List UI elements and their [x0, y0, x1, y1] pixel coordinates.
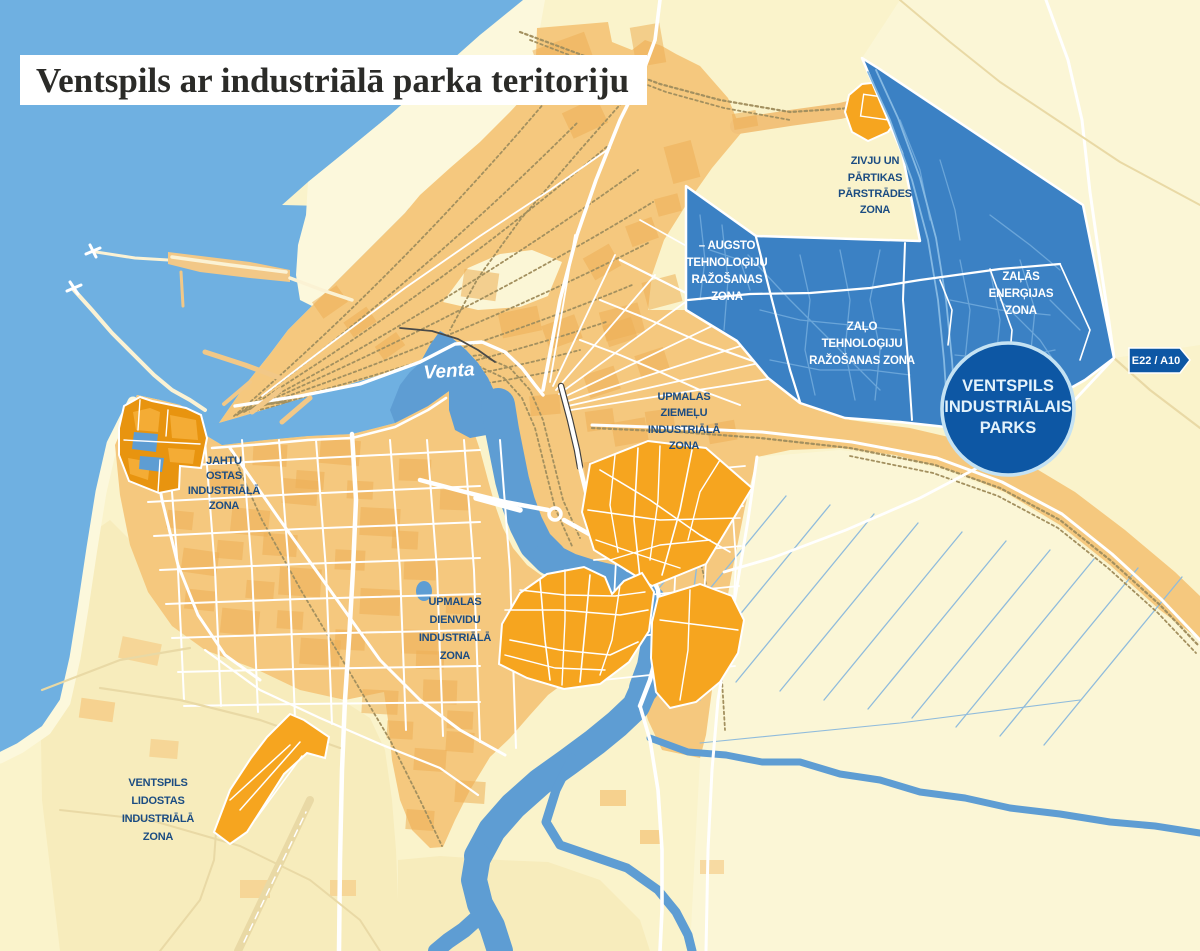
svg-text:TEHNOLOĢIJU: TEHNOLOĢIJU: [822, 338, 903, 350]
svg-text:VENTSPILS: VENTSPILS: [128, 777, 187, 789]
svg-text:OSTAS: OSTAS: [206, 470, 242, 482]
svg-text:ZONA: ZONA: [711, 291, 743, 303]
svg-text:RAŽOŠANAS: RAŽOŠANAS: [691, 273, 763, 286]
svg-text:PĀRTIKAS: PĀRTIKAS: [848, 172, 903, 184]
svg-text:DIENVIDU: DIENVIDU: [430, 614, 481, 626]
svg-text:– AUGSTO: – AUGSTO: [699, 240, 756, 252]
svg-text:INDUSTRIĀLĀ: INDUSTRIĀLĀ: [648, 424, 721, 436]
svg-text:INDUSTRIĀLAIS: INDUSTRIĀLAIS: [944, 397, 1071, 416]
svg-text:VENTSPILS: VENTSPILS: [962, 377, 1054, 395]
svg-text:ZONA: ZONA: [143, 831, 174, 843]
svg-text:ZIVJU UN: ZIVJU UN: [851, 155, 900, 167]
svg-text:PARKS: PARKS: [980, 419, 1037, 437]
svg-text:UPMALAS: UPMALAS: [658, 391, 711, 403]
svg-text:ZIEMEĻU: ZIEMEĻU: [661, 407, 708, 419]
svg-text:ZONA: ZONA: [209, 500, 240, 512]
svg-text:ZONA: ZONA: [860, 204, 891, 216]
svg-text:UPMALAS: UPMALAS: [429, 596, 482, 608]
svg-text:ZAĻĀS: ZAĻĀS: [1002, 271, 1040, 283]
svg-text:ZONA: ZONA: [669, 440, 700, 452]
svg-text:INDUSTRIĀLĀ: INDUSTRIĀLĀ: [419, 632, 492, 644]
svg-text:ZAĻO: ZAĻO: [847, 321, 878, 333]
svg-text:PĀRSTRĀDES: PĀRSTRĀDES: [838, 188, 912, 200]
svg-text:Ventspils ar industriālā parka: Ventspils ar industriālā parka teritorij…: [36, 61, 629, 100]
svg-text:E22 / A10: E22 / A10: [1132, 355, 1181, 367]
svg-text:LIDOSTAS: LIDOSTAS: [131, 795, 184, 807]
svg-text:ZONA: ZONA: [1005, 305, 1037, 317]
svg-text:INDUSTRIĀLĀ: INDUSTRIĀLĀ: [122, 813, 195, 825]
svg-text:ENERĢIJAS: ENERĢIJAS: [989, 288, 1054, 300]
svg-text:ZONA: ZONA: [440, 650, 471, 662]
svg-text:INDUSTRIĀLĀ: INDUSTRIĀLĀ: [188, 485, 261, 497]
svg-text:Venta: Venta: [423, 359, 476, 384]
svg-text:TEHNOLOĢIJU: TEHNOLOĢIJU: [687, 257, 768, 269]
svg-text:JAHTU: JAHTU: [206, 455, 242, 467]
svg-text:RAŽOŠANAS ZONA: RAŽOŠANAS ZONA: [809, 354, 915, 367]
